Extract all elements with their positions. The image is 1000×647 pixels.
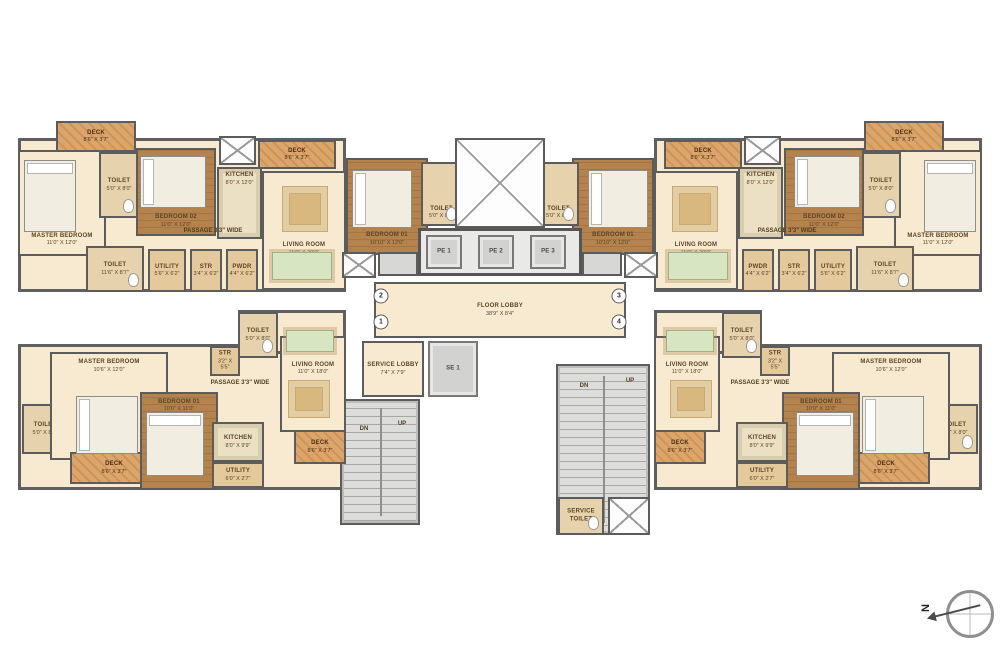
pwdr-top: PWDR4'4" X 6'2" xyxy=(226,249,258,292)
bed-master-bottom xyxy=(76,396,138,454)
stair-left-up-label: UP xyxy=(398,421,406,427)
passage-label-top-right: PASSAGE 3'3" WIDE xyxy=(758,228,817,234)
dining-table-top-right xyxy=(668,252,728,280)
unit-number-1: 1 xyxy=(374,315,389,330)
passage-label-top: PASSAGE 3'3" WIDE xyxy=(184,228,243,234)
shaft-bottom-right xyxy=(608,497,650,535)
lift-lobby-strip xyxy=(378,252,418,276)
shaft-near-stair-top-right xyxy=(624,252,658,278)
deck-top-inner: DECK8'6" X 3'7" xyxy=(258,140,336,169)
dining-table-bottom xyxy=(286,330,334,352)
elevator-pe2: PE 2 xyxy=(478,235,514,269)
bed-bedroom01-bottom-right xyxy=(796,412,854,476)
shaft-near-stair-top xyxy=(342,252,376,278)
toilet-master-top-right: TOILET5'0" X 8'0" xyxy=(861,152,901,218)
toilet-common-bottom: TOILET5'0" X 8'0" xyxy=(238,312,278,358)
bed-master-top xyxy=(24,160,76,232)
pwdr-top-right: PWDR4'4" X 6'2" xyxy=(742,249,774,292)
duct-top xyxy=(219,136,256,165)
rug-living-top-right xyxy=(672,186,718,232)
bed-bedroom01-top-right xyxy=(588,170,648,228)
unit-number-3: 3 xyxy=(612,289,627,304)
service-toilet: SERVICE TOILET xyxy=(558,497,604,535)
passage-label-bottom: PASSAGE 3'3" WIDE xyxy=(211,380,270,386)
deck-bottom-inner-right: DECK8'6" X 3'7" xyxy=(654,430,706,464)
unit-number-4: 4 xyxy=(612,315,627,330)
stair-left xyxy=(340,399,420,525)
toilet-master-top: TOILET5'0" X 8'0" xyxy=(99,152,139,218)
north-label: N xyxy=(920,604,932,612)
compass-needle-icon xyxy=(933,604,980,618)
stair-right-up-label: UP xyxy=(626,378,634,384)
utility-bottom-right: UTILITY6'0" X 2'7" xyxy=(736,462,788,488)
kitchen-bottom-right: KITCHEN8'0" X 9'9" xyxy=(736,422,788,462)
deck-top-outer-right: DECK8'6" X 3'7" xyxy=(864,121,944,152)
lift-lobby-strip-right xyxy=(582,252,622,276)
passage-label-bottom-right: PASSAGE 3'3" WIDE xyxy=(731,380,790,386)
floor-plan-canvas: DECK8'6" X 3'7"DECK8'6" X 3'7"MASTER BED… xyxy=(0,0,1000,647)
toilet-common-bottom-right: TOILET5'0" X 8'0" xyxy=(722,312,762,358)
dining-table-bottom-right xyxy=(666,330,714,352)
rug-living-bottom xyxy=(288,380,330,418)
utility-bottom: UTILITY6'0" X 2'7" xyxy=(212,462,264,488)
duct-top-right xyxy=(744,136,781,165)
elevator-se1: SE 1 xyxy=(428,341,478,397)
deck-top-inner-right: DECK8'6" X 3'7" xyxy=(664,140,742,169)
unit-number-2: 2 xyxy=(374,289,389,304)
rug-living-bottom-right xyxy=(670,380,712,418)
bed-master-bottom-right xyxy=(862,396,924,454)
bed-bedroom01-top xyxy=(352,170,412,228)
str-top: STR3'4" X 6'2" xyxy=(190,249,222,292)
kitchen-bottom: KITCHEN8'0" X 9'9" xyxy=(212,422,264,462)
north-compass-icon xyxy=(946,590,994,638)
elevator-pe1: PE 1 xyxy=(426,235,462,269)
str-bottom-right: STR3'2" X 5'5" xyxy=(760,346,790,376)
dining-table-top xyxy=(272,252,332,280)
deck-bottom-inner: DECK8'6" X 3'7" xyxy=(294,430,346,464)
north-arrow: N xyxy=(922,588,996,640)
floor-lobby: FLOOR LOBBY38'9" X 8'4" xyxy=(374,282,626,338)
str-bottom: STR3'2" X 5'5" xyxy=(210,346,240,376)
toilet-common-top-right: TOILET11'6" X 8'7" xyxy=(856,246,914,292)
str-top-right: STR3'4" X 6'2" xyxy=(778,249,810,292)
utility-top: UTILITY5'6" X 6'2" xyxy=(148,249,186,292)
elevator-pe3: PE 3 xyxy=(530,235,566,269)
bed-bedroom01-bottom xyxy=(146,412,204,476)
void-center xyxy=(455,138,545,228)
bed-master-top-right xyxy=(924,160,976,232)
stair-right-dn-label: DN xyxy=(580,383,589,389)
service-lobby: SERVICE LOBBY7'4" X 7'9" xyxy=(362,341,424,397)
utility-top-right: UTILITY5'6" X 6'2" xyxy=(814,249,852,292)
stair-left-dn-label: DN xyxy=(360,426,369,432)
bed-bedroom02-top xyxy=(140,156,206,208)
deck-top-outer: DECK8'6" X 3'7" xyxy=(56,121,136,152)
rug-living-top xyxy=(282,186,328,232)
toilet-common-top: TOILET11'6" X 8'7" xyxy=(86,246,144,292)
bed-bedroom02-top-right xyxy=(794,156,860,208)
